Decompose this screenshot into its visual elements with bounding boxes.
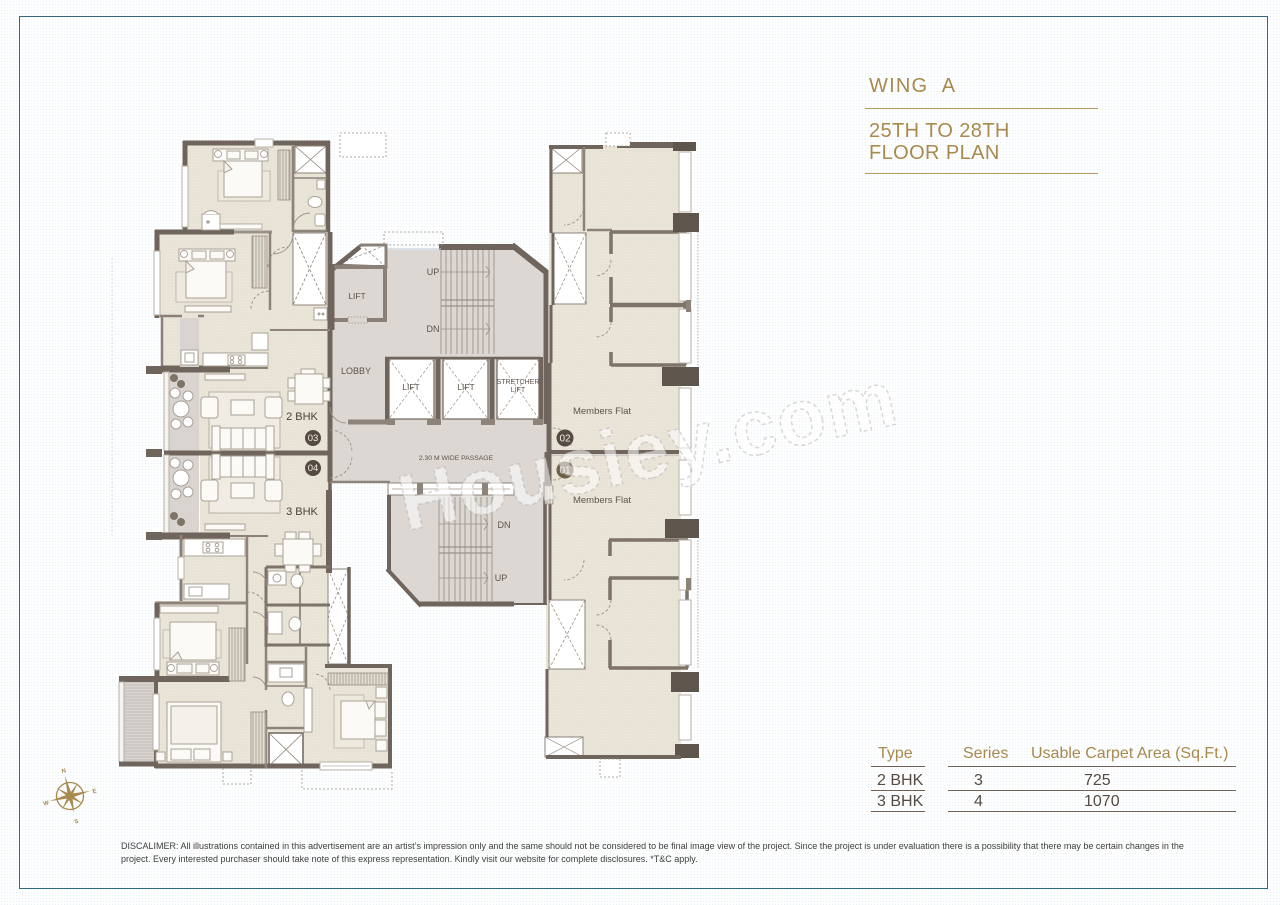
svg-text:DN: DN	[427, 324, 440, 334]
svg-text:LIFT: LIFT	[457, 382, 474, 392]
svg-text:Members Flat: Members Flat	[573, 406, 631, 417]
svg-text:LIFT: LIFT	[348, 291, 365, 301]
svg-text:LIFT: LIFT	[402, 382, 419, 392]
svg-text:02: 02	[559, 434, 571, 445]
svg-text:01: 01	[559, 466, 571, 477]
svg-text:04: 04	[308, 463, 319, 474]
svg-text:N: N	[61, 768, 67, 775]
svg-text:UP: UP	[495, 573, 508, 583]
svg-text:S: S	[74, 819, 79, 826]
svg-text:Members Flat: Members Flat	[573, 495, 631, 506]
svg-text:UP: UP	[427, 267, 440, 277]
svg-text:2 BHK: 2 BHK	[286, 411, 318, 423]
svg-text:STRETCHER: STRETCHER	[497, 379, 540, 386]
svg-text:03: 03	[308, 433, 319, 444]
svg-text:E: E	[92, 788, 97, 795]
svg-text:2.30 M WIDE PASSAGE: 2.30 M WIDE PASSAGE	[419, 455, 494, 462]
svg-text:DN: DN	[498, 520, 511, 530]
svg-text:LIFT: LIFT	[511, 387, 526, 394]
svg-text:3 BHK: 3 BHK	[286, 506, 318, 518]
svg-text:W: W	[43, 800, 50, 807]
svg-text:LOBBY: LOBBY	[341, 366, 371, 376]
